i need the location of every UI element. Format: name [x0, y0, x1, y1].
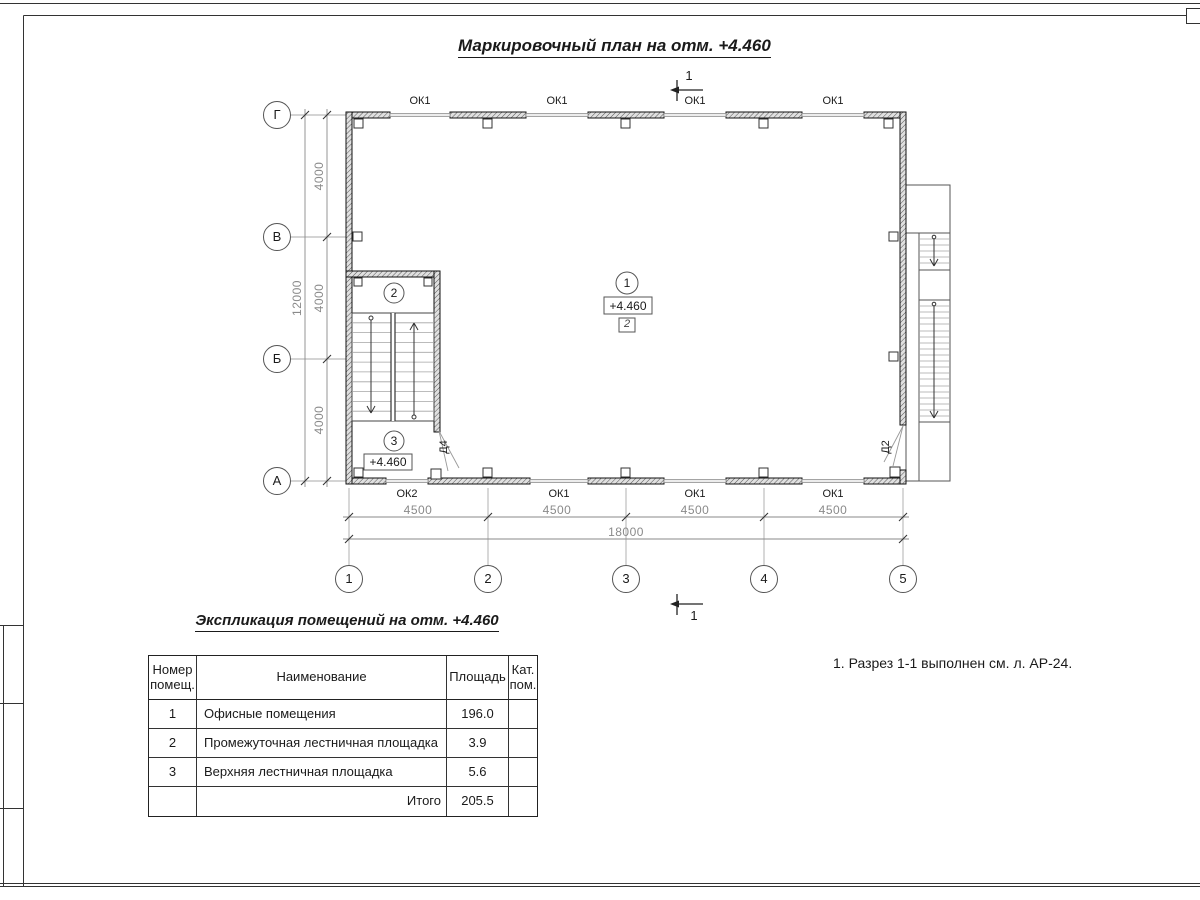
elevation-mark-room3: +4.460 — [364, 455, 412, 469]
window-label: ОК1 — [673, 488, 717, 500]
interior-stair — [352, 313, 434, 421]
dim-bottom-4: 4500 — [803, 503, 863, 517]
axis-bubble-b: Б — [263, 351, 291, 366]
schedule-cell-name: Офисные помещения — [197, 700, 447, 729]
section-mark-label-bottom: 1 — [686, 608, 702, 623]
elevation-mark-room1: +4.460 — [604, 299, 652, 313]
section-marks — [670, 80, 703, 615]
schedule-title: Экспликация помещений на отм. +4.460 — [192, 612, 502, 629]
door-tag-d4: Д4 — [438, 434, 450, 460]
window-label: ОК1 — [673, 95, 717, 107]
window-label: ОК1 — [811, 488, 855, 500]
window-label: ОК2 — [385, 488, 429, 500]
dim-bottom-total: 18000 — [591, 525, 661, 539]
schedule-cell-cat — [509, 700, 537, 729]
axis-bubble-v: В — [263, 229, 291, 244]
schedule-cell-num: 3 — [149, 758, 197, 787]
dim-left-total: 12000 — [290, 263, 304, 333]
axis-bubble-5: 5 — [889, 571, 917, 586]
schedule-total-empty — [149, 787, 197, 816]
door-tag-d2: Д2 — [880, 434, 892, 460]
schedule-cell-cat — [509, 729, 537, 758]
schedule-total-cat — [509, 787, 537, 816]
window-label: ОК1 — [398, 95, 442, 107]
floor-type-mark: 2 — [619, 318, 635, 330]
page-title: Маркировочный план на отм. +4.460 — [458, 36, 768, 56]
dim-left-3: 4000 — [312, 390, 326, 450]
section-mark-label-top: 1 — [681, 68, 697, 83]
axis-bubble-2: 2 — [474, 571, 502, 586]
dim-bottom-1: 4500 — [388, 503, 448, 517]
schedule-total-value: 205.5 — [447, 787, 509, 816]
axis-bubble-g: Г — [263, 107, 291, 122]
schedule-cell-name: Промежуточная лестничная площадка — [197, 729, 447, 758]
window-label: ОК1 — [535, 95, 579, 107]
schedule-cell-area: 5.6 — [447, 758, 509, 787]
window-label: ОК1 — [811, 95, 855, 107]
dim-bottom-2: 4500 — [527, 503, 587, 517]
schedule-header-name: Наименование — [197, 656, 447, 700]
schedule-header-num: Номер помещ. — [149, 656, 197, 700]
schedule-total-label: Итого — [197, 787, 447, 816]
schedule-cell-name: Верхняя лестничная площадка — [197, 758, 447, 787]
dim-bottom-3: 4500 — [665, 503, 725, 517]
room-number-1: 1 — [616, 276, 638, 290]
schedule-cell-num: 2 — [149, 729, 197, 758]
axis-bubble-4: 4 — [750, 571, 778, 586]
schedule-cell-area: 196.0 — [447, 700, 509, 729]
schedule-header-cat: Кат. пом. — [509, 656, 537, 700]
axis-bubble-3: 3 — [612, 571, 640, 586]
room-schedule-table: Номер помещ. Наименование Площадь Кат. п… — [148, 655, 538, 817]
room-number-3: 3 — [383, 434, 405, 448]
axis-bubble-a: А — [263, 473, 291, 488]
schedule-cell-num: 1 — [149, 700, 197, 729]
schedule-cell-cat — [509, 758, 537, 787]
dim-left-1: 4000 — [312, 146, 326, 206]
window-label: ОК1 — [537, 488, 581, 500]
exterior-stair — [906, 185, 950, 481]
note-text: 1. Разрез 1-1 выполнен см. л. АР-24. — [833, 655, 1072, 671]
dim-left-2: 4000 — [312, 268, 326, 328]
schedule-cell-area: 3.9 — [447, 729, 509, 758]
axis-bubble-1: 1 — [335, 571, 363, 586]
door-swings — [439, 426, 903, 471]
room-number-2: 2 — [383, 286, 405, 300]
schedule-header-area: Площадь — [447, 656, 509, 700]
drawing-sheet: Маркировочный план на отм. +4.460 1 1 ОК… — [0, 0, 1200, 900]
